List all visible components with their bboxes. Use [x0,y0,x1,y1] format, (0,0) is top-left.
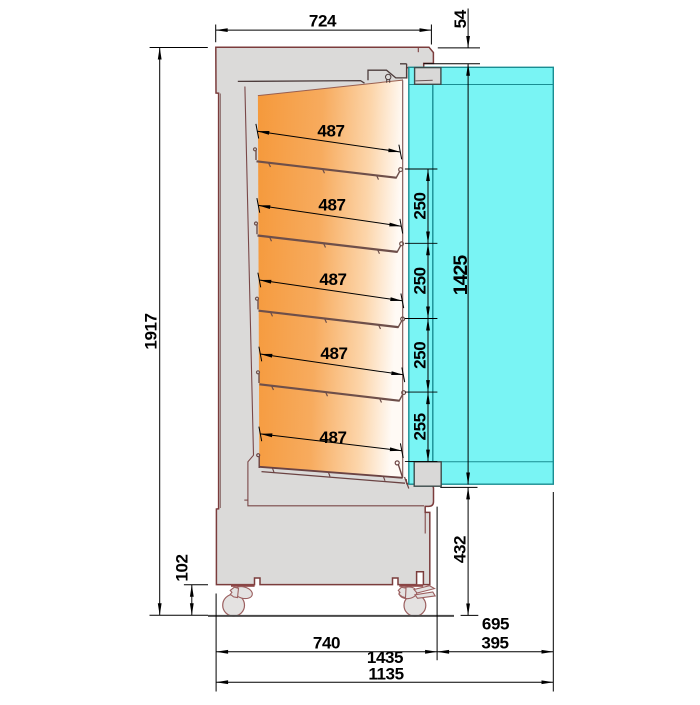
svg-text:255: 255 [411,413,430,440]
svg-text:102: 102 [173,554,192,581]
svg-text:487: 487 [319,428,346,447]
svg-text:432: 432 [451,536,470,563]
svg-text:487: 487 [319,270,346,289]
svg-text:487: 487 [318,196,345,215]
svg-text:695: 695 [482,615,509,634]
svg-text:395: 395 [481,633,508,652]
svg-text:250: 250 [411,267,430,294]
svg-text:740: 740 [313,633,340,652]
svg-text:250: 250 [411,342,430,369]
svg-text:1917: 1917 [142,313,161,349]
svg-text:54: 54 [451,9,470,28]
svg-text:724: 724 [309,12,337,31]
svg-text:1135: 1135 [368,665,403,684]
svg-text:487: 487 [317,121,344,140]
svg-text:250: 250 [411,192,430,219]
svg-text:1425: 1425 [450,255,472,296]
svg-text:487: 487 [320,344,347,363]
